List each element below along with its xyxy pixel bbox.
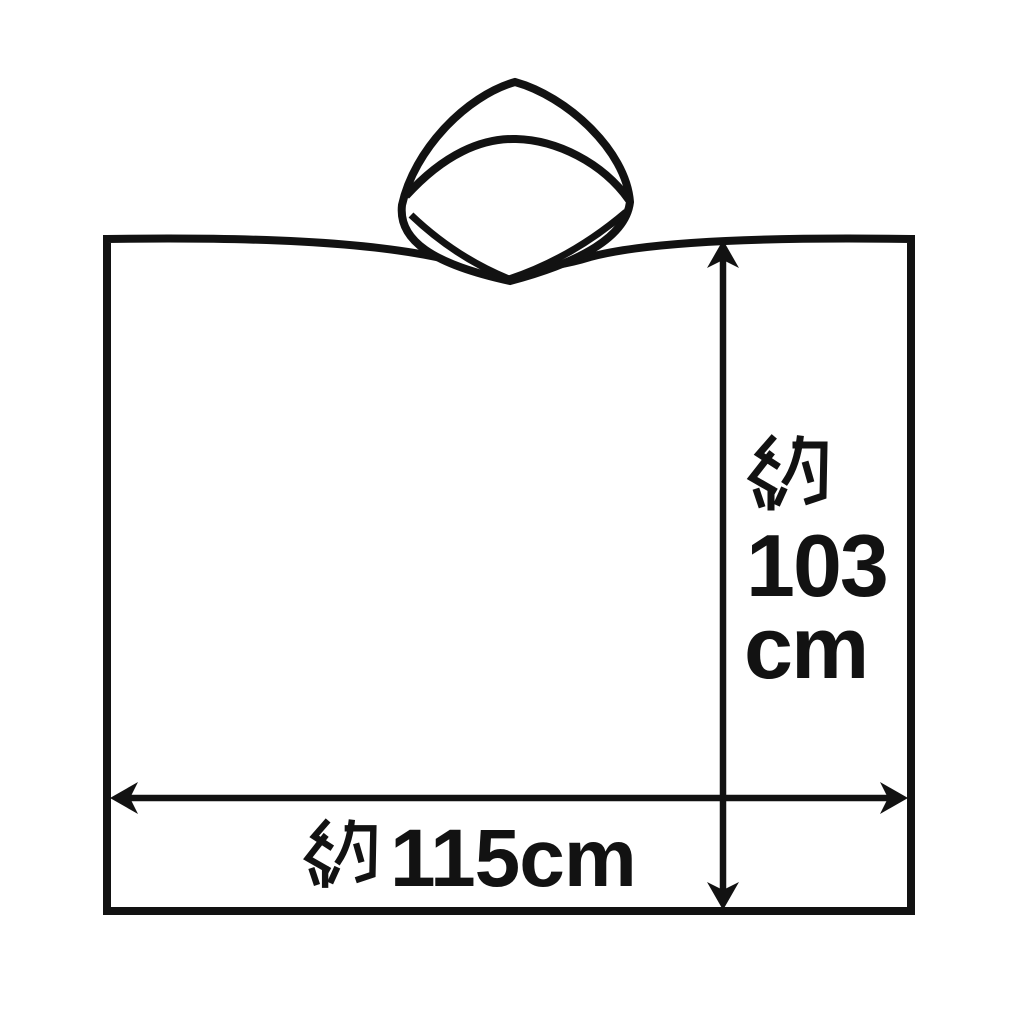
hooded-towel-dimension-diagram: 103 cm 115cm: [0, 0, 1024, 1024]
diagram-canvas: 103 cm 115cm: [0, 0, 1024, 1024]
width-value-text: 115cm: [390, 813, 636, 904]
height-unit-text: cm: [744, 598, 867, 697]
